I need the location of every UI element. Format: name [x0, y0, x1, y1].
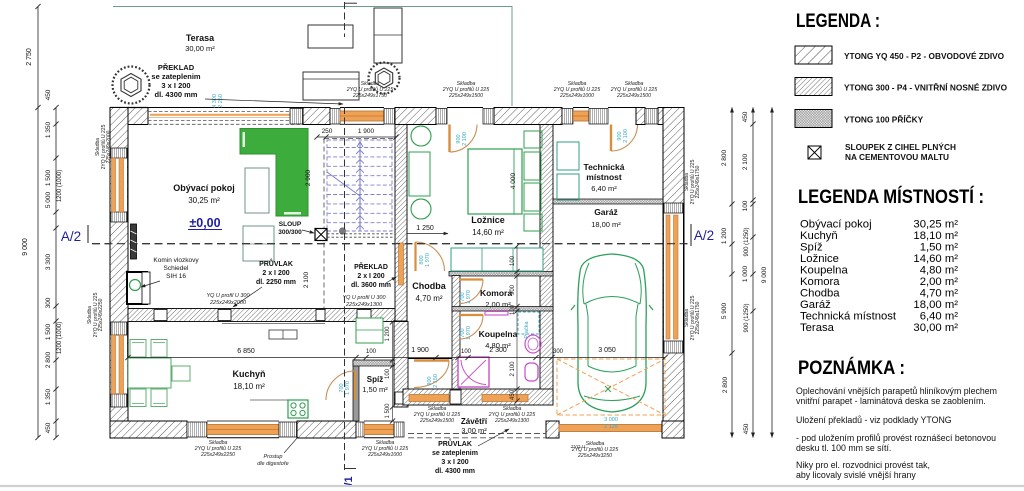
svg-text:2 x I 200: 2 x I 200	[262, 270, 289, 277]
svg-text:1 500: 1 500	[45, 169, 52, 186]
svg-text:225x249x2000: 225x249x2000	[209, 300, 247, 306]
svg-text:2,00 m²: 2,00 m²	[485, 300, 511, 309]
svg-text:450: 450	[742, 111, 749, 122]
svg-text:1,50 m²: 1,50 m²	[920, 242, 959, 254]
svg-text:30,25 m²: 30,25 m²	[188, 196, 220, 205]
svg-text:vnitřní parapet - laminátová d: vnitřní parapet - laminátová deska se za…	[796, 396, 986, 406]
svg-text:2 800: 2 800	[45, 351, 52, 368]
svg-text:18,10 m²: 18,10 m²	[913, 230, 958, 242]
svg-text:3 000: 3 000	[604, 417, 618, 423]
svg-text:NA CEMENTOVOU MALTU: NA CEMENTOVOU MALTU	[845, 152, 949, 162]
svg-text:LEGENDA :: LEGENDA :	[796, 10, 880, 32]
svg-text:dl. 3600 mm: dl. 3600 mm	[351, 282, 391, 289]
svg-text:Prostup: Prostup	[264, 454, 283, 460]
svg-text:225x249x1500: 225x249x1500	[419, 418, 454, 424]
svg-text:Chodba: Chodba	[800, 288, 840, 300]
svg-text:YTONG YQ 450 - P2 - OBVODOVÉ Z: YTONG YQ 450 - P2 - OBVODOVÉ ZDIVO	[844, 51, 1005, 61]
svg-text:225x249x1000: 225x249x1000	[367, 452, 402, 458]
svg-text:225x249x1750: 225x249x1750	[352, 93, 387, 99]
svg-text:Kuchyň: Kuchyň	[232, 369, 265, 379]
svg-text:Garáž: Garáž	[800, 299, 831, 311]
svg-text:1 970: 1 970	[425, 253, 431, 267]
svg-text:225x249x3250: 225x249x3250	[577, 453, 612, 459]
svg-text:Komora: Komora	[800, 276, 840, 288]
svg-text:225x249x1750: 225x249x1750	[695, 301, 701, 334]
svg-text:YQ U profil U 300: YQ U profil U 300	[342, 295, 386, 301]
svg-text:Závětří: Závětří	[461, 417, 488, 426]
svg-text:18,00 m²: 18,00 m²	[913, 299, 958, 311]
svg-text:225x249x1500: 225x249x1500	[616, 93, 651, 99]
svg-text:aby licovaly svislé vnější hra: aby licovaly svislé vnější hrany	[796, 470, 916, 480]
svg-text:4 000: 4 000	[510, 172, 517, 189]
svg-text:/1: /1	[343, 476, 355, 485]
svg-text:YTONG 300 - P4 - VNITŘNÍ NOSNÉ: YTONG 300 - P4 - VNITŘNÍ NOSNÉ ZDIVO	[844, 82, 1008, 93]
svg-text:2YQ U profilů U 225: 2YQ U profilů U 225	[346, 86, 394, 93]
svg-text:Technická: Technická	[584, 162, 625, 172]
svg-text:2 900: 2 900	[305, 169, 312, 186]
svg-text:Koupelna: Koupelna	[479, 329, 518, 339]
svg-text:100: 100	[461, 349, 472, 355]
svg-text:2 125: 2 125	[604, 424, 618, 430]
svg-text:1 970: 1 970	[466, 326, 472, 340]
svg-text:3 x I 200: 3 x I 200	[161, 81, 190, 90]
svg-text:4,80 m²: 4,80 m²	[920, 265, 959, 277]
svg-text:2 100: 2 100	[462, 132, 468, 146]
svg-text:6 850: 6 850	[237, 348, 255, 355]
svg-text:300: 300	[45, 297, 52, 308]
svg-text:PŘEKLAD: PŘEKLAD	[158, 63, 195, 72]
svg-text:Obývací pokoj: Obývací pokoj	[800, 219, 872, 231]
svg-text:6,40 m²: 6,40 m²	[920, 311, 959, 323]
svg-text:450: 450	[45, 422, 52, 433]
svg-text:1 900: 1 900	[358, 128, 375, 135]
svg-text:2 100: 2 100	[742, 153, 749, 170]
svg-text:1,50 m²: 1,50 m²	[362, 385, 388, 394]
svg-text:6,40 m²: 6,40 m²	[591, 184, 617, 193]
svg-text:18,10 m²: 18,10 m²	[233, 382, 265, 391]
svg-text:1 970: 1 970	[345, 381, 351, 395]
svg-text:30,25 m²: 30,25 m²	[913, 219, 958, 231]
svg-text:1 900: 1 900	[411, 347, 429, 354]
svg-text:1 200: 1 200	[385, 326, 391, 342]
svg-text:2YQ U profilů U 225: 2YQ U profilů U 225	[610, 86, 658, 93]
svg-text:SIH 16: SIH 16	[166, 273, 186, 280]
svg-text:225x249x1750: 225x249x1750	[695, 165, 701, 198]
svg-text:Niky pro el. rozvodnici provés: Niky pro el. rozvodnici provést tak,	[796, 460, 930, 470]
svg-text:desku tl. 100 mm se sítí.: desku tl. 100 mm se sítí.	[796, 443, 891, 453]
svg-text:2YQ U profilů U 225: 2YQ U profilů U 225	[361, 445, 409, 452]
svg-text:Pračka: Pračka	[524, 321, 530, 339]
svg-text:místnost: místnost	[586, 172, 622, 182]
svg-text:±0,00: ±0,00	[189, 216, 220, 230]
svg-text:Garáž: Garáž	[594, 207, 618, 217]
svg-text:2 800: 2 800	[722, 376, 729, 393]
svg-text:225x249x2250: 225x249x2250	[200, 452, 235, 458]
svg-text:225x249x1500: 225x249x1500	[448, 93, 483, 99]
svg-text:450: 450	[743, 423, 750, 434]
svg-text:1200 (1000): 1200 (1000)	[57, 322, 63, 354]
svg-text:LEGENDA MÍSTNOSTÍ :: LEGENDA MÍSTNOSTÍ :	[798, 185, 984, 208]
svg-text:se zateplenim: se zateplenim	[151, 72, 201, 81]
svg-text:Ložnice: Ložnice	[471, 215, 505, 225]
svg-text:Koupelna: Koupelna	[800, 265, 848, 277]
svg-text:100: 100	[510, 304, 516, 315]
svg-text:Chodba: Chodba	[412, 281, 446, 291]
svg-text:9 000: 9 000	[761, 266, 768, 283]
svg-text:2YQ U profilů U 225: 2YQ U profilů U 225	[413, 411, 461, 418]
svg-text:100: 100	[510, 255, 516, 266]
svg-text:Terasa: Terasa	[800, 322, 835, 334]
svg-text:2 100: 2 100	[303, 271, 310, 288]
svg-text:Spíž: Spíž	[367, 375, 383, 384]
svg-text:1200 (1000): 1200 (1000)	[57, 170, 63, 202]
svg-text:1 500: 1 500	[45, 323, 52, 340]
svg-text:2 100: 2 100	[623, 129, 629, 143]
svg-text:Komin vlozkovy: Komin vlozkovy	[153, 257, 199, 264]
svg-text:2YQ U profilů U 225: 2YQ U profilů U 225	[442, 86, 490, 93]
svg-text:14,60 m²: 14,60 m²	[472, 228, 504, 237]
svg-text:1 350: 1 350	[45, 121, 52, 138]
svg-text:2 750: 2 750	[26, 48, 33, 66]
svg-text:100: 100	[742, 200, 749, 211]
svg-text:2YQ U profilů U 225: 2YQ U profilů U 225	[194, 445, 242, 452]
svg-text:450: 450	[510, 389, 516, 400]
svg-text:300/300: 300/300	[278, 229, 302, 236]
svg-text:900 (1250): 900 (1250)	[744, 227, 750, 256]
svg-text:1 000: 1 000	[742, 265, 749, 282]
svg-text:SLOUP: SLOUP	[279, 221, 302, 228]
svg-text:3 x I 200: 3 x I 200	[441, 459, 468, 466]
svg-text:- pod uložením profilů provést: - pod uložením profilů provést roznášecí…	[796, 433, 996, 443]
svg-text:4,70 m²: 4,70 m²	[415, 294, 442, 303]
svg-text:225x249x1000: 225x249x1000	[559, 93, 594, 99]
svg-text:2YQ U profilů U 225: 2YQ U profilů U 225	[553, 86, 601, 93]
svg-text:dl. 2250 mm: dl. 2250 mm	[256, 279, 296, 286]
svg-text:POZNÁMKA :: POZNÁMKA :	[798, 356, 905, 379]
svg-text:Oplechování vnějších parapetů: Oplechování vnějších parapetů hliníkovým…	[796, 386, 997, 396]
svg-text:Spíž: Spíž	[800, 242, 823, 254]
svg-text:2,00 m²: 2,00 m²	[920, 276, 959, 288]
svg-text:225x249x2000: 225x249x2000	[106, 130, 112, 163]
svg-text:Obývací pokoj: Obývací pokoj	[173, 183, 235, 193]
svg-text:1 250: 1 250	[416, 225, 434, 232]
svg-text:Ložnice: Ložnice	[800, 253, 839, 265]
svg-text:1 350: 1 350	[45, 388, 52, 405]
svg-text:2 250: 2 250	[218, 94, 224, 108]
svg-text:Kuchyň: Kuchyň	[800, 230, 838, 242]
svg-text:5 900: 5 900	[721, 302, 728, 319]
svg-text:dl. 4300 mm: dl. 4300 mm	[155, 90, 198, 99]
svg-text:1 200: 1 200	[721, 227, 728, 244]
svg-text:300: 300	[553, 349, 564, 355]
svg-text:A/2: A/2	[61, 229, 81, 244]
svg-text:9 000: 9 000	[22, 238, 29, 256]
svg-text:se zateplenim: se zateplenim	[432, 450, 478, 457]
svg-text:2YQ U profilů U 225: 2YQ U profilů U 225	[488, 411, 536, 418]
svg-text:Uložení překladů - viz podklad: Uložení překladů - viz podklady YTONG	[796, 415, 952, 425]
svg-text:100: 100	[385, 368, 391, 379]
svg-text:18,00 m²: 18,00 m²	[591, 220, 621, 229]
svg-text:14,60 m²: 14,60 m²	[913, 253, 958, 265]
svg-text:Komora: Komora	[480, 288, 512, 298]
svg-text:dl. 4300 mm: dl. 4300 mm	[435, 468, 475, 475]
svg-text:225x249x1300: 225x249x1300	[345, 302, 383, 308]
svg-text:2 800: 2 800	[721, 149, 728, 166]
svg-text:225x249x2250: 225x249x2250	[98, 298, 104, 331]
svg-text:5 000: 5 000	[45, 191, 52, 208]
svg-text:2 x I 200: 2 x I 200	[357, 273, 384, 280]
svg-text:YQ U profil U 300: YQ U profil U 300	[206, 293, 250, 299]
svg-text:Terasa: Terasa	[186, 33, 215, 43]
svg-text:900 (1250): 900 (1250)	[744, 303, 750, 332]
svg-text:2YQ U...: 2YQ U...	[570, 444, 589, 450]
svg-text:2 100: 2 100	[510, 361, 516, 377]
svg-text:100: 100	[366, 349, 377, 355]
svg-text:900: 900	[510, 284, 516, 295]
svg-text:3 300: 3 300	[45, 253, 52, 270]
svg-text:2 150: 2 150	[433, 374, 439, 388]
svg-text:Schiedel: Schiedel	[164, 265, 189, 272]
svg-text:dle digestoře: dle digestoře	[257, 461, 289, 467]
svg-text:30,00 m²: 30,00 m²	[913, 322, 958, 334]
svg-text:A/2: A/2	[694, 228, 714, 243]
svg-text:1 970: 1 970	[466, 290, 472, 304]
svg-text:225x249x1300: 225x249x1300	[494, 418, 529, 424]
svg-text:250: 250	[322, 128, 333, 135]
svg-text:PŘEKLAD: PŘEKLAD	[354, 262, 388, 271]
svg-text:SLOUPEK Z CIHEL PLNÝCH: SLOUPEK Z CIHEL PLNÝCH	[845, 141, 956, 152]
svg-text:1 500: 1 500	[385, 403, 391, 419]
svg-text:Technická místnost: Technická místnost	[800, 311, 897, 323]
svg-text:YTONG 100 PŘÍČKY: YTONG 100 PŘÍČKY	[844, 114, 924, 125]
svg-text:3 050: 3 050	[598, 347, 616, 354]
svg-text:4,70 m²: 4,70 m²	[920, 288, 959, 300]
svg-text:450: 450	[45, 89, 52, 100]
svg-text:2 300: 2 300	[489, 347, 507, 354]
svg-text:30,00 m²: 30,00 m²	[185, 44, 215, 53]
